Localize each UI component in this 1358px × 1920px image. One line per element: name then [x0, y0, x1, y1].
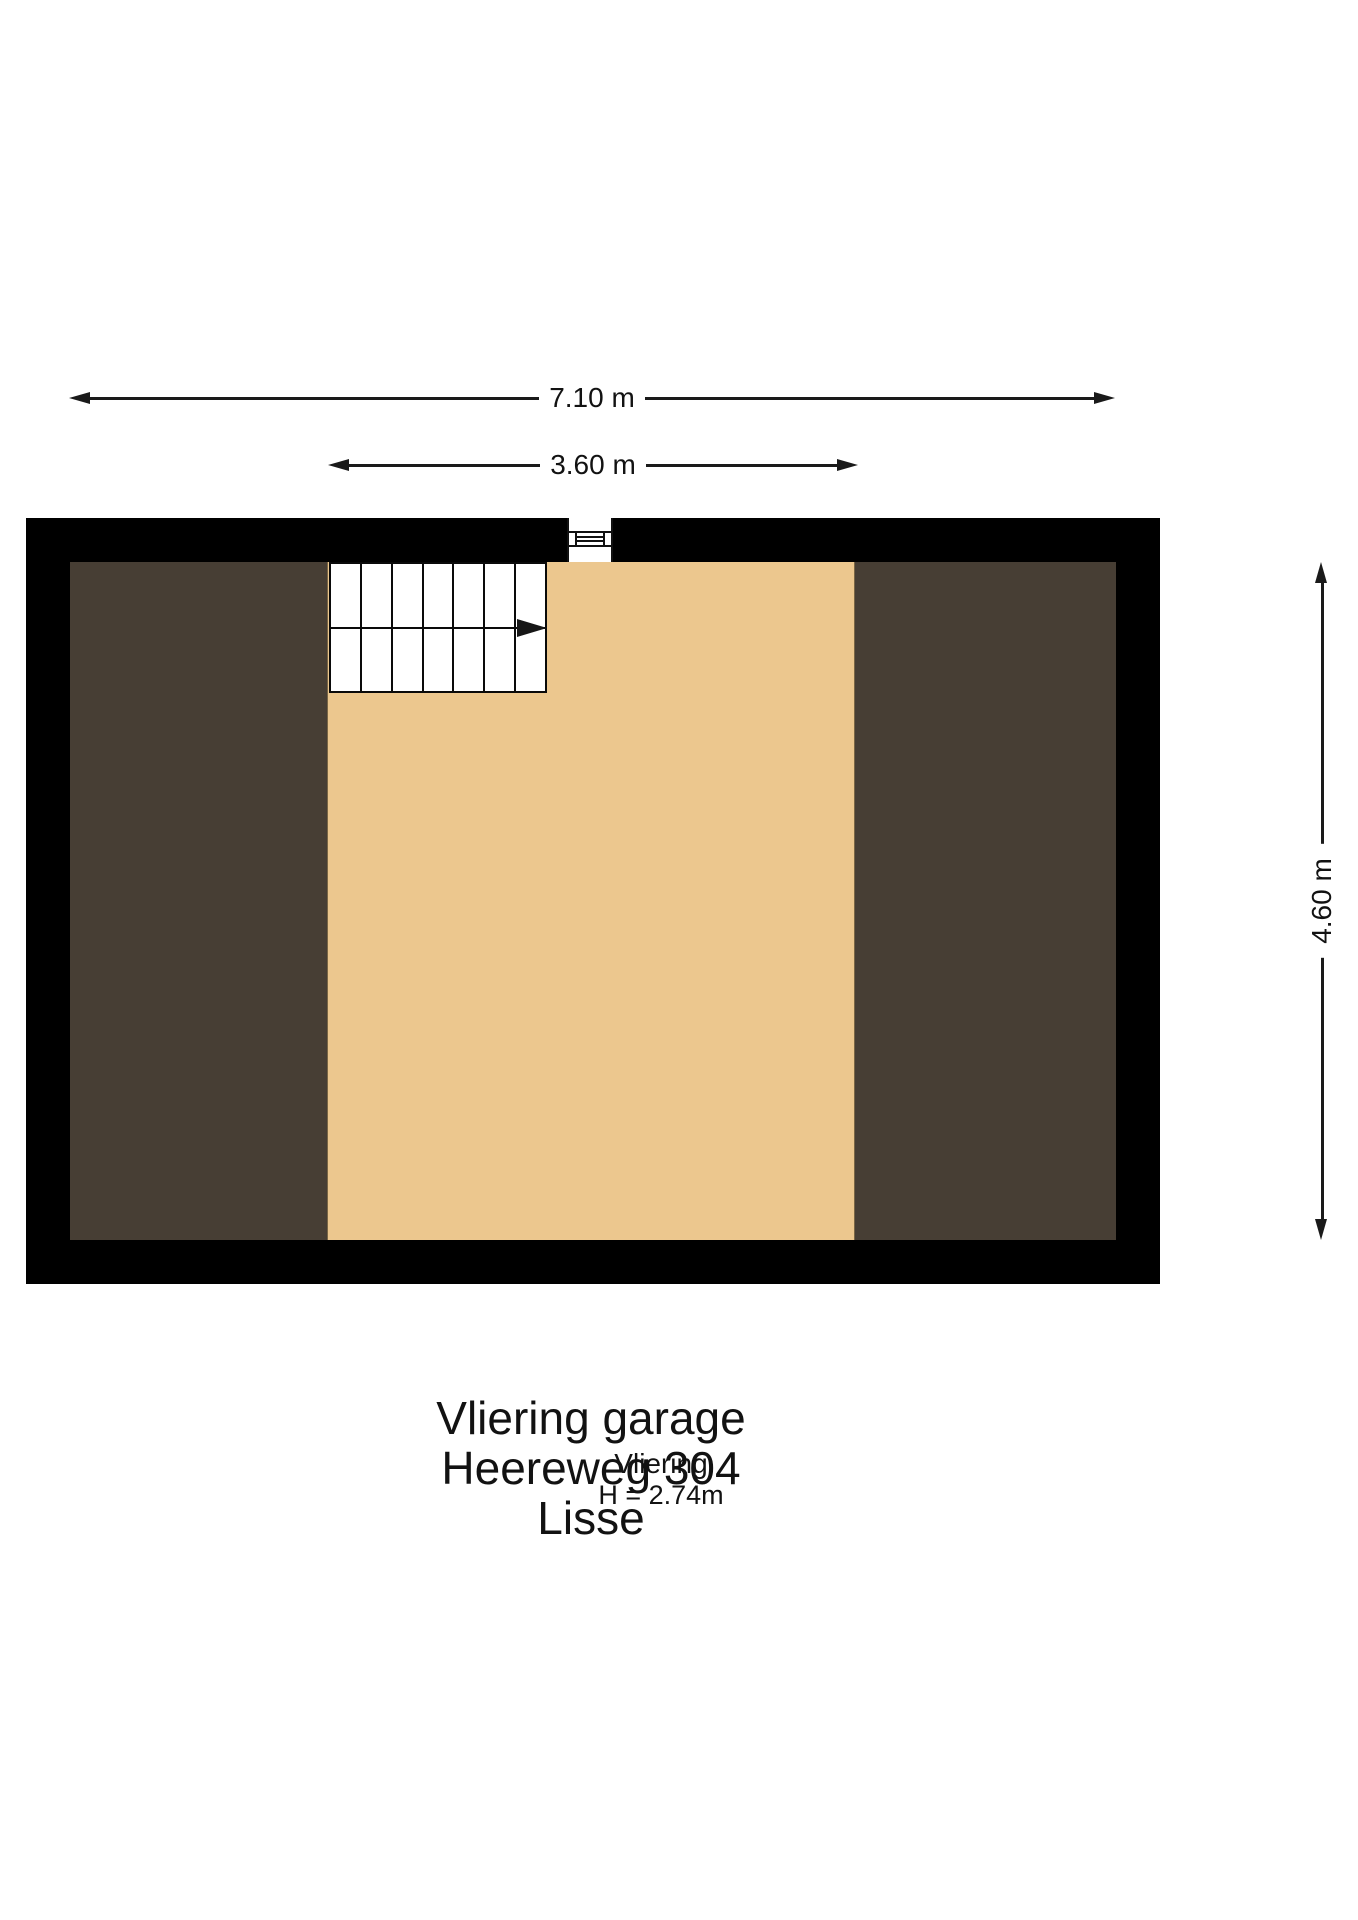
- right-arrow-icon: [517, 619, 547, 637]
- stair-step: [393, 629, 422, 692]
- stair-step: [424, 564, 453, 627]
- stair-step: [454, 564, 483, 627]
- dimension-vliering-width: 3.60 m: [328, 445, 858, 485]
- window-icon: [567, 531, 613, 547]
- caption-line-1: Vliering garage: [241, 1393, 941, 1443]
- roof-space-right: [855, 562, 1116, 1240]
- roof-space-left: [70, 562, 327, 1240]
- stairs: [329, 562, 547, 693]
- caption-line-2: Heereweg 304: [241, 1443, 941, 1493]
- stair-step: [485, 629, 514, 692]
- stair-step: [331, 564, 360, 627]
- dimension-label: 7.10 m: [539, 378, 645, 418]
- stair-step: [454, 629, 483, 692]
- wall-opening: [567, 518, 613, 562]
- dimension-label: 3.60 m: [540, 445, 646, 485]
- stair-step: [362, 564, 391, 627]
- dimension-overall-width: 7.10 m: [69, 378, 1115, 418]
- stair-step: [516, 564, 545, 627]
- window-panes: [577, 533, 603, 545]
- dimension-overall-depth: 4.60 m: [1304, 562, 1340, 1240]
- arrow-down-icon: [1315, 1219, 1327, 1240]
- window-post: [569, 533, 577, 545]
- floorplan-interior: Vliering H = 2.74m: [70, 562, 1116, 1240]
- stair-step: [424, 629, 453, 692]
- stair-step: [485, 564, 514, 627]
- stair-step: [362, 629, 391, 692]
- dimension-label: 4.60 m: [1304, 844, 1340, 958]
- caption-line-3: Lisse: [241, 1493, 941, 1543]
- floorplan-page: 7.10 m 3.60 m Vliering H = 2.74m: [0, 0, 1358, 1920]
- window-post: [603, 533, 611, 545]
- stair-step: [393, 564, 422, 627]
- stair-step: [331, 629, 360, 692]
- arrow-up-icon: [1315, 562, 1327, 583]
- caption: Vliering garage Heereweg 304 Lisse: [241, 1393, 941, 1543]
- floorplan-outline: Vliering H = 2.74m: [26, 518, 1160, 1284]
- stair-step: [516, 629, 545, 692]
